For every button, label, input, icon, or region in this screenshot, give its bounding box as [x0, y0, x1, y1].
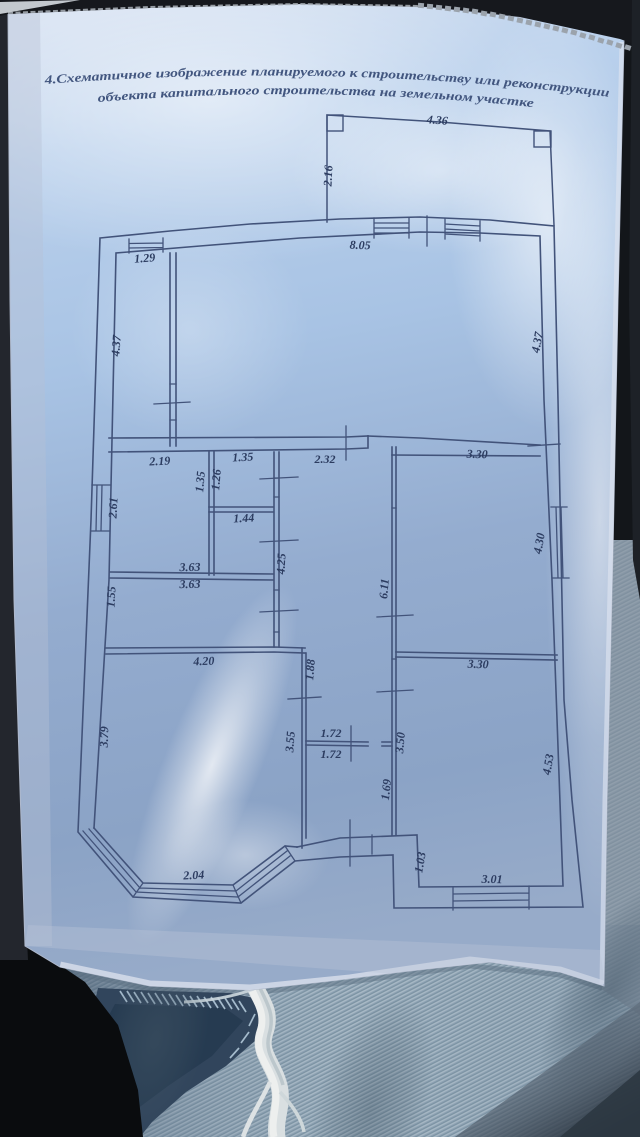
svg-text:3.50: 3.50	[392, 732, 408, 755]
svg-text:2.19: 2.19	[148, 453, 171, 468]
svg-text:3.30: 3.30	[465, 447, 487, 462]
svg-text:2.32: 2.32	[314, 452, 336, 466]
svg-text:4.37: 4.37	[108, 334, 124, 358]
svg-text:2.61: 2.61	[105, 497, 120, 520]
svg-text:1.26: 1.26	[208, 469, 224, 491]
svg-text:2.04: 2.04	[182, 867, 205, 882]
svg-text:3.01: 3.01	[480, 872, 502, 886]
svg-text:1.72: 1.72	[321, 747, 342, 761]
svg-text:2.16: 2.16	[320, 165, 335, 188]
svg-text:4.20: 4.20	[192, 654, 214, 669]
svg-text:3.63: 3.63	[178, 577, 200, 591]
svg-text:1.29: 1.29	[134, 250, 156, 265]
svg-text:1.35: 1.35	[192, 471, 208, 493]
svg-text:8.05: 8.05	[349, 238, 370, 253]
svg-text:1.35: 1.35	[232, 449, 254, 464]
svg-text:1.55: 1.55	[103, 586, 118, 608]
svg-text:6.11: 6.11	[376, 578, 392, 599]
svg-text:4.25: 4.25	[273, 553, 288, 576]
svg-text:3.55: 3.55	[282, 731, 298, 754]
svg-text:1.88: 1.88	[302, 659, 318, 681]
svg-text:1.72: 1.72	[321, 726, 342, 740]
svg-text:1.44: 1.44	[233, 510, 255, 525]
svg-text:1.69: 1.69	[378, 778, 394, 800]
svg-text:4.36: 4.36	[425, 112, 448, 128]
svg-text:3.79: 3.79	[97, 726, 112, 748]
svg-text:3.30: 3.30	[466, 657, 488, 672]
svg-text:3.63: 3.63	[178, 560, 200, 574]
